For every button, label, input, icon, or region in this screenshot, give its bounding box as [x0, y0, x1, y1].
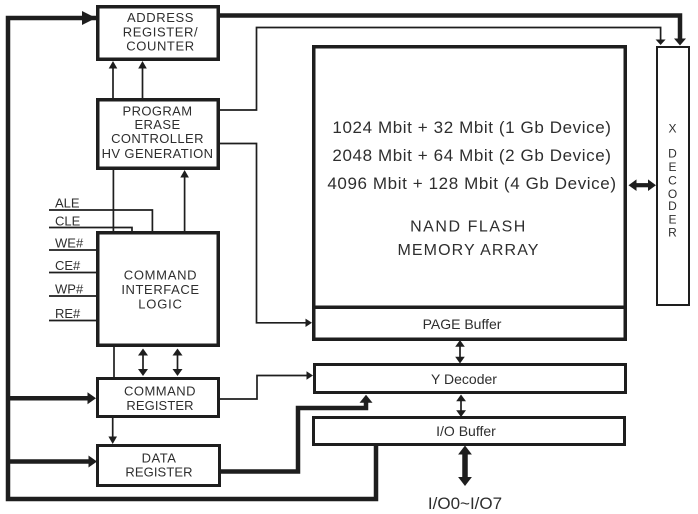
svg-text:REGISTER: REGISTER: [125, 465, 192, 480]
svg-text:E: E: [668, 213, 676, 227]
svg-text:DATA: DATA: [142, 451, 177, 466]
svg-text:COMMAND: COMMAND: [124, 384, 196, 399]
svg-text:HV GENERATION: HV GENERATION: [102, 146, 214, 161]
svg-text:COUNTER: COUNTER: [126, 39, 194, 54]
svg-text:4096 Mbit + 128 Mbit (4 Gb Dev: 4096 Mbit + 128 Mbit (4 Gb Device): [327, 174, 616, 193]
svg-text:WP#: WP#: [55, 282, 84, 297]
svg-text:COMMAND: COMMAND: [124, 268, 198, 283]
svg-text:CONTROLLER: CONTROLLER: [111, 131, 204, 146]
svg-text:E: E: [668, 160, 676, 174]
svg-text:ERASE: ERASE: [134, 117, 180, 132]
svg-text:REGISTER/: REGISTER/: [123, 25, 198, 40]
svg-text:I/O Buffer: I/O Buffer: [436, 423, 496, 439]
svg-text:REGISTER: REGISTER: [126, 398, 193, 413]
svg-text:I/O0~I/O7: I/O0~I/O7: [428, 494, 502, 513]
svg-text:C: C: [668, 174, 677, 188]
svg-text:1024 Mbit + 32 Mbit (1 Gb Devi: 1024 Mbit + 32 Mbit (1 Gb Device): [332, 118, 611, 137]
svg-text:INTERFACE: INTERFACE: [121, 282, 199, 297]
svg-text:ADDRESS: ADDRESS: [127, 10, 194, 25]
svg-text:PAGE Buffer: PAGE Buffer: [423, 316, 502, 332]
svg-text:R: R: [668, 226, 677, 240]
svg-text:RE#: RE#: [55, 306, 81, 321]
svg-text:CE#: CE#: [55, 258, 81, 273]
svg-text:2048 Mbit + 64 Mbit (2 Gb Devi: 2048 Mbit + 64 Mbit (2 Gb Device): [332, 146, 611, 165]
svg-text:MEMORY ARRAY: MEMORY ARRAY: [397, 242, 539, 259]
svg-text:NAND FLASH: NAND FLASH: [410, 219, 527, 236]
svg-text:CLE: CLE: [55, 214, 81, 229]
svg-text:X: X: [668, 122, 676, 136]
svg-text:D: D: [668, 199, 677, 213]
svg-text:WE#: WE#: [55, 236, 84, 251]
svg-text:ALE: ALE: [55, 196, 80, 211]
svg-text:LOGIC: LOGIC: [138, 297, 182, 312]
svg-text:Y Decoder: Y Decoder: [431, 371, 497, 387]
svg-text:D: D: [668, 147, 677, 161]
